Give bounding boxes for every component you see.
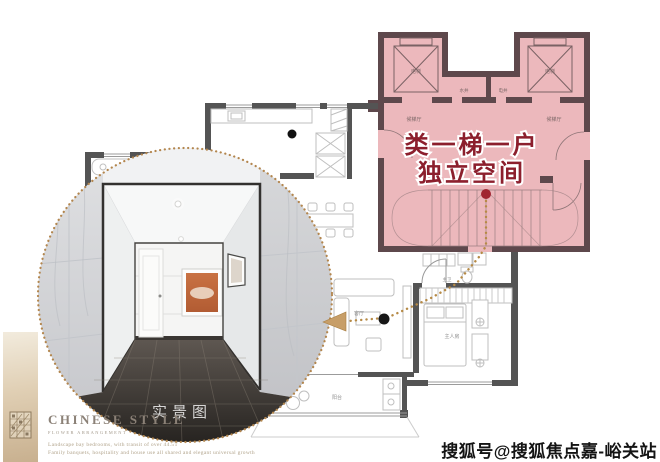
spotlight [179, 237, 184, 242]
sofa [334, 279, 394, 296]
core-location-dot [481, 189, 491, 199]
seal-icon [9, 408, 33, 442]
shaft-water-label: 水井 [460, 87, 469, 94]
elevator-right-label: 电梯 [545, 68, 555, 75]
brand-title: CHINESE STYLE [48, 412, 255, 428]
brand-desc-line2: Family banquets, hospitality and house u… [48, 449, 255, 457]
slogan-line1: 类一梯一户 [405, 131, 540, 159]
lobby-right-label: 候梯厅 [546, 116, 561, 123]
brand-subtitle: FLOWER ARRANGEMENT [48, 430, 255, 435]
kitchen-counter [211, 109, 312, 123]
kitchen-dot [288, 130, 297, 139]
core-zone: 电梯 电梯 水井 电井 候梯厅 候梯厅 [368, 32, 590, 252]
page: 电梯 电梯 水井 电井 候梯厅 候梯厅 [0, 0, 660, 462]
brand-desc-line1: Landscape bay bedrooms, with transit of … [48, 441, 255, 449]
living-label: 客厅 [354, 310, 364, 317]
slogan-line2: 独立空间 [418, 159, 526, 187]
bath-label: 主卫 [443, 276, 452, 283]
brand-description: Landscape bay bedrooms, with transit of … [48, 441, 255, 457]
elevator-left-label: 电梯 [411, 68, 421, 75]
shaft-elec-label: 电井 [499, 87, 508, 94]
lobby-left-label: 候梯厅 [406, 116, 421, 123]
bedroom-label: 主人房 [444, 333, 459, 340]
photo-inset: 实景图 [36, 146, 334, 444]
watermark: 搜狐号@搜狐焦点嘉-峪关站 [441, 437, 657, 462]
small-frame [228, 254, 245, 287]
brand-block: CHINESE STYLE FLOWER ARRANGEMENT Landsca… [48, 412, 255, 457]
tv-cabinet [403, 286, 411, 358]
artwork-frame [182, 269, 222, 316]
side-banner [3, 332, 38, 462]
